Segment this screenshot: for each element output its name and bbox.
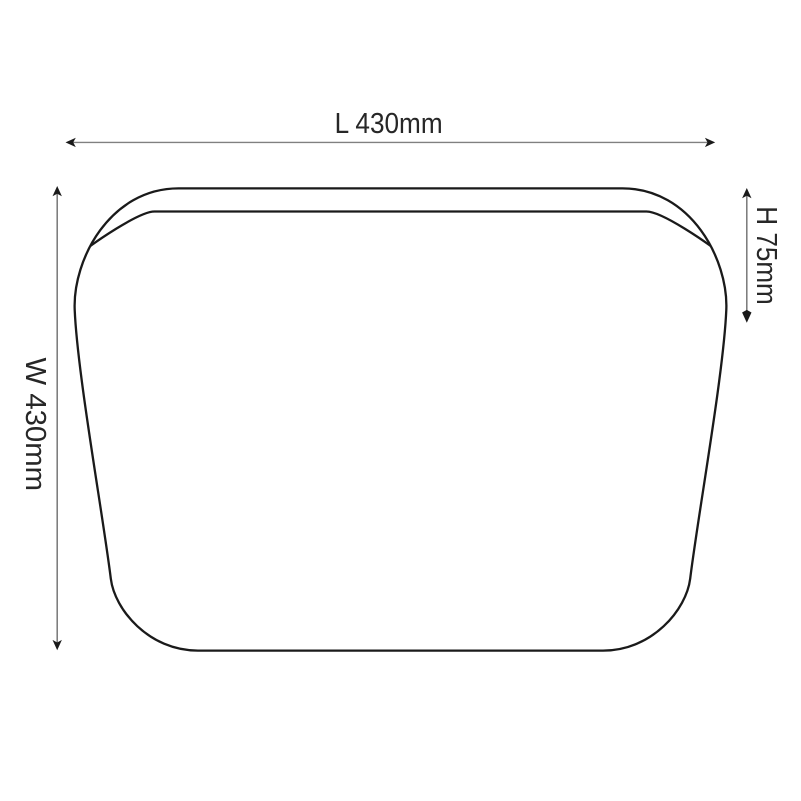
svg-text:H 75mm: H 75mm <box>750 206 782 305</box>
svg-text:L 430mm: L 430mm <box>335 108 443 140</box>
svg-text:W 430mm: W 430mm <box>19 358 51 492</box>
